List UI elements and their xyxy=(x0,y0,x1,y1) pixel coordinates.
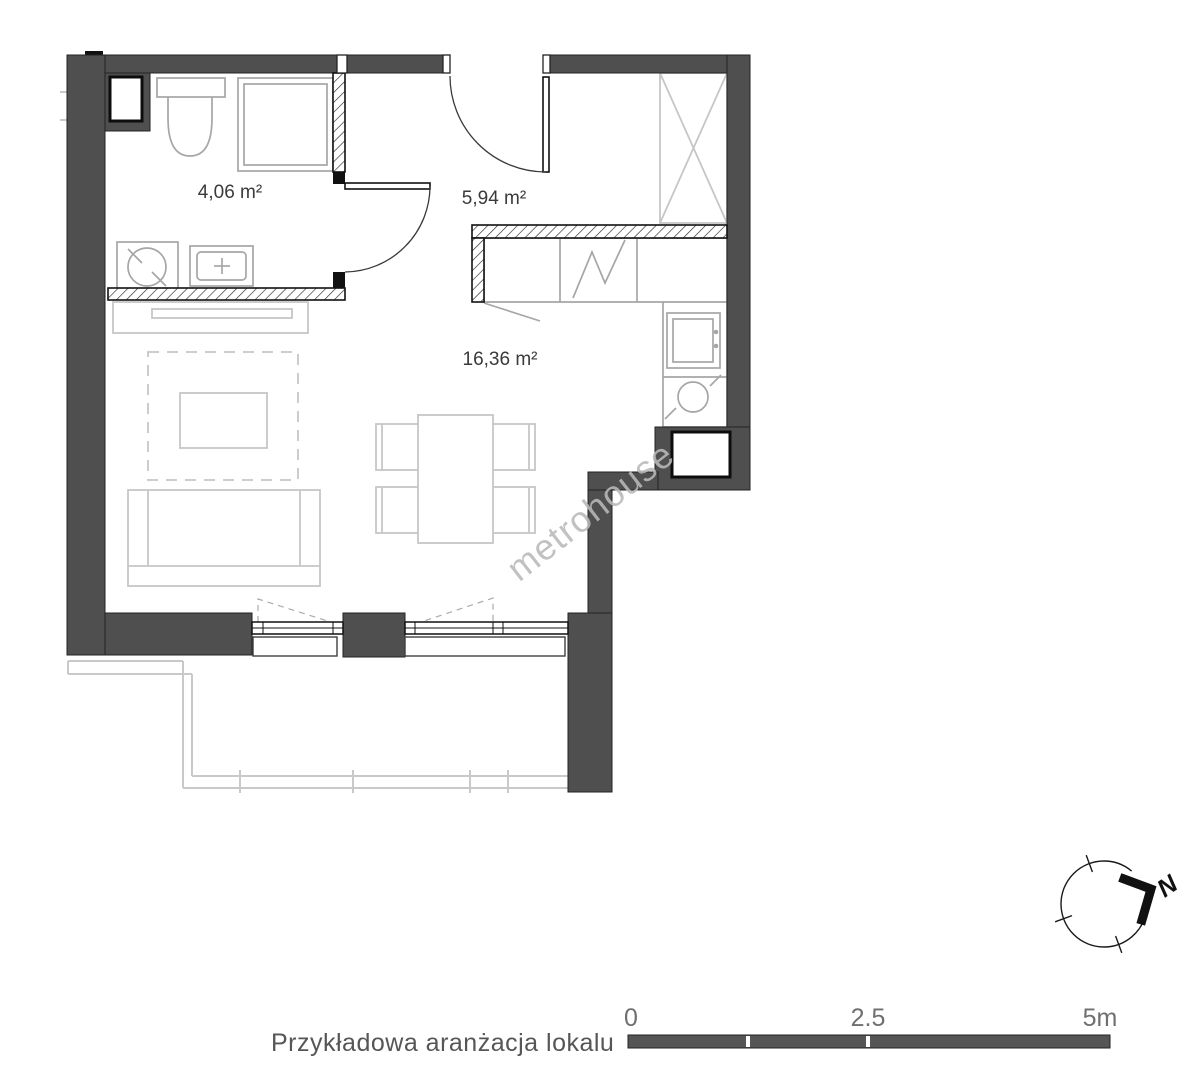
wall-left xyxy=(67,55,105,655)
wall-pier-between-windows xyxy=(343,613,405,657)
toilet-bowl-icon xyxy=(168,97,212,156)
compass-tick xyxy=(1116,936,1122,953)
scale-bar-divider xyxy=(866,1036,870,1047)
scale-label-end: 5m xyxy=(1083,1004,1118,1032)
north-arrow-icon xyxy=(1124,879,1151,920)
walls xyxy=(67,51,750,792)
scale-bar: 0 2.5 5m xyxy=(624,1004,1117,1048)
window-sill xyxy=(405,637,565,656)
toilet-tank-icon xyxy=(157,78,225,97)
oven-icon xyxy=(667,313,720,368)
bathroom-door-swing-arc xyxy=(345,186,430,272)
wall-right xyxy=(727,55,750,427)
door-jamb xyxy=(333,272,345,289)
oven-knob xyxy=(714,330,719,335)
room-area-label-hallway: 5,94 m² xyxy=(462,188,526,209)
shaft-box xyxy=(672,432,730,477)
room-area-label-living: 16,36 m² xyxy=(463,349,538,370)
entrance-door-leaf xyxy=(543,77,549,172)
washing-machine-icon xyxy=(117,242,178,290)
entrance-door-swing-arc xyxy=(450,76,546,172)
wall-bottom xyxy=(105,613,252,655)
compass: N xyxy=(1055,855,1184,953)
partition-bathroom-vertical xyxy=(333,73,345,172)
window-swing-dashed xyxy=(258,599,337,624)
window-swing-dashed xyxy=(415,598,493,624)
wall-top-right xyxy=(550,55,750,73)
plan-caption: Przykładowa aranżacja lokalu xyxy=(271,1029,614,1057)
wall-cap xyxy=(337,55,347,73)
dining-table-icon xyxy=(418,415,493,543)
partition-bathroom-horizontal xyxy=(108,288,345,300)
door-jamb xyxy=(333,172,345,184)
coffee-table-icon xyxy=(180,393,267,448)
shower-tray-icon xyxy=(238,78,333,171)
compass-circle xyxy=(1061,861,1147,947)
sofa-icon xyxy=(128,490,320,586)
kitchen-counter xyxy=(484,238,727,427)
corner-cabinet-line xyxy=(484,303,540,321)
north-label: N xyxy=(1152,869,1184,903)
door-cap xyxy=(443,55,450,73)
bathroom-door-leaf xyxy=(345,183,430,189)
wall-top-left xyxy=(67,55,337,73)
floor-plan-page: 4,06 m² 5,94 m² 16,36 m² metrohouse N 0 … xyxy=(0,0,1202,1080)
floor-plan-canvas: 4,06 m² 5,94 m² 16,36 m² metrohouse N 0 … xyxy=(0,0,1202,1080)
room-area-label-bathroom: 4,06 m² xyxy=(198,182,262,203)
partition-kitchen-horizontal xyxy=(472,225,727,238)
scale-bar-divider xyxy=(746,1036,750,1047)
windows xyxy=(252,598,568,656)
scale-label-start: 0 xyxy=(624,1004,638,1032)
wall-tick xyxy=(85,51,103,55)
shaft-box xyxy=(110,77,142,121)
scale-label-mid: 2.5 xyxy=(851,1004,886,1032)
window-sill xyxy=(253,637,337,656)
door-cap xyxy=(543,55,550,73)
partition-kitchen-vertical xyxy=(472,238,484,302)
wall-top-middle xyxy=(347,55,443,73)
wardrobe-icon xyxy=(660,73,727,223)
oven-knob xyxy=(714,344,719,349)
wall-pier-bottom-right xyxy=(568,613,612,792)
living-room-furniture xyxy=(113,302,535,586)
